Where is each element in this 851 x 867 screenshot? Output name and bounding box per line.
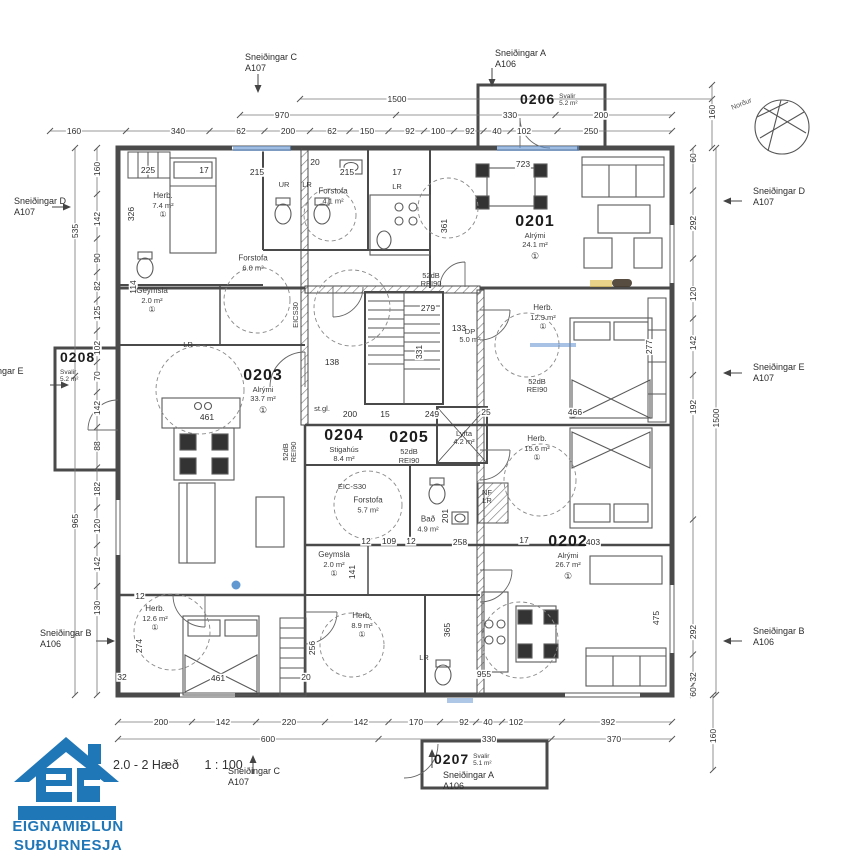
coffee-table-0201 [598,205,650,233]
unit-label-0208: 0208 Svalir 5.2 m² [60,350,95,384]
sink-bathA [340,160,362,174]
section-marker-right-d: Sneiðingar D A107 [753,186,805,209]
unit-label-0207: 0207 Svalir 5.1 m² [434,752,492,768]
unit-number: 0206 [520,92,555,106]
section-marker-left-e: Sneiðingar E A107 [0,366,24,389]
section-marker-left-d: Sneiðingar D A107 [14,196,66,219]
compass-icon [755,100,809,154]
windows [115,145,676,699]
bed-right-1 [570,318,652,418]
unit-number: 0201 [515,214,555,230]
unit-label-0204: 0204 Stigahús 8.4 m² [324,428,364,463]
stairs [368,292,440,404]
unit-number: 0208 [60,350,95,364]
walls [118,148,672,695]
kitchen-0202 [482,592,508,672]
unit-label-0203: 0203 Alrými 33.7 m² ① [243,368,283,416]
sofa-0201 [582,157,664,197]
unit-label-0205: 0205 52dB REI90 [389,430,429,465]
toilet-bath-0202 [429,478,468,524]
unit-number: 0202 [548,534,588,550]
title-block: 2.0 - 2 Hæð 1 : 100 [113,758,265,772]
logo-line-1: EIGNAMIÐLUN [2,818,134,837]
section-marker-top-c: Sneiðingar C A107 [245,52,297,75]
armchair-0201-a [584,238,612,268]
unit-number: 0205 [389,430,429,446]
drawing-scale: 1 : 100 [205,758,243,772]
toilet-topleft [137,252,153,278]
section-marker-top-a: Sneiðingar A A106 [495,48,546,71]
unit-mark: ① [243,405,283,416]
section-marker-right-b: Sneiðingar B A106 [753,626,805,649]
section-marker-left-b: Sneiðingar B A106 [40,628,92,651]
toilet-bottom [435,660,451,685]
sofa-0202 [586,648,666,686]
unit-label-0202: 0202 Alrými 26.7 m² ① [548,534,588,582]
bench-0202 [590,556,662,584]
dining-0203 [174,428,234,480]
bed-topleft [170,158,216,253]
sofa-0203 [179,483,215,563]
unit-mark: ① [548,571,588,582]
toilet-bathB [314,198,330,224]
drawing-title: 2.0 - 2 Hæð [113,758,179,772]
unit-mark: ① [515,251,555,262]
section-marker-right-e: Sneiðingar E A107 [753,362,805,385]
toilet-bathA [275,198,291,224]
bed-right-2 [570,428,652,528]
shelf-0203 [256,497,284,547]
kitchen-0201 [370,195,430,255]
section-arrows [50,68,742,774]
dining-0202 [516,606,558,662]
company-logo: EIGNAMIÐLUN SUÐURNESJA [2,818,134,856]
bed-bottomleft [183,616,259,695]
logo-line-2: SUÐURNESJA [2,837,134,856]
unit-number: 0207 [434,752,469,766]
unit-number: 0203 [243,368,283,384]
unit-label-0206: 0206 Svalir 5.2 m² [520,92,578,108]
logo-house-icon [14,737,119,820]
dining-0201 [476,164,547,209]
unit-label-0201: 0201 Alrými 24.1 m² ① [515,214,555,262]
armchair-0201-b [634,238,662,268]
section-marker-bottom-a: Sneiðingar A A106 [443,770,494,793]
unit-number: 0204 [324,428,364,444]
floorplan-sheet: 1500970330200160340622006215092100924010… [0,0,851,867]
